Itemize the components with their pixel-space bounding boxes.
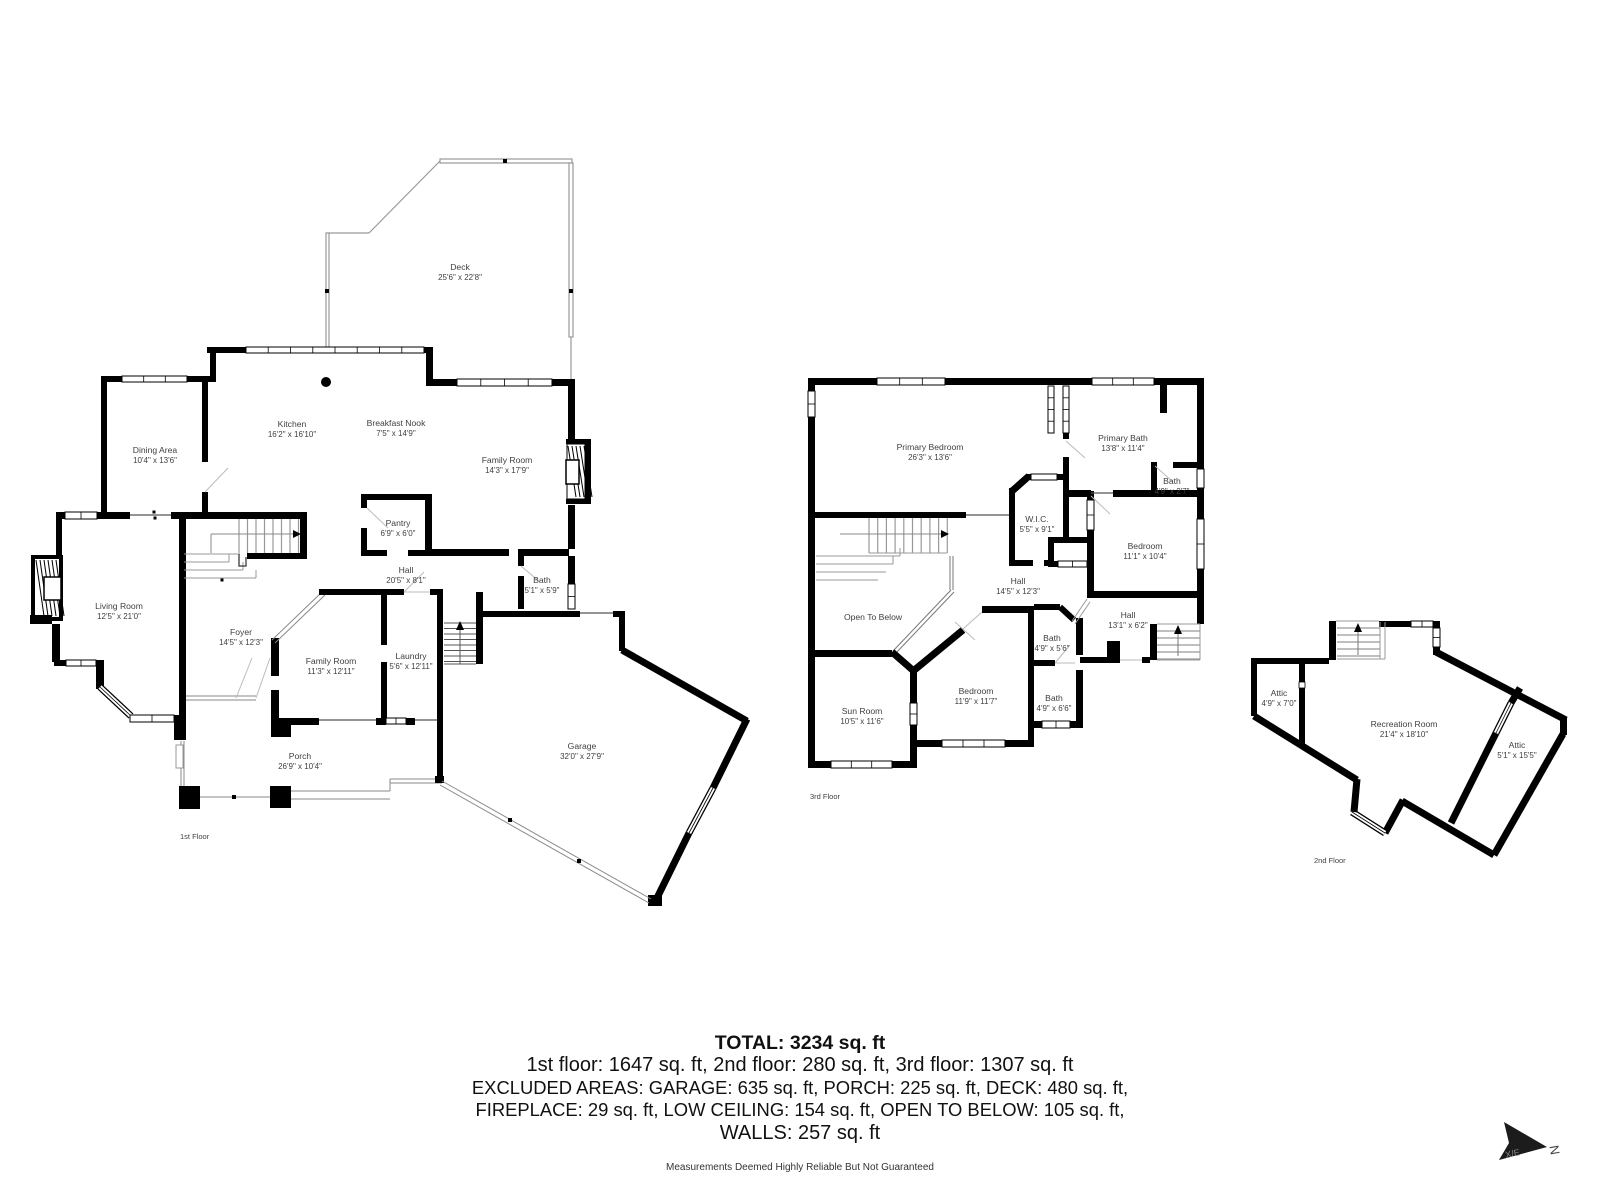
svg-text:26'9" x 10'4": 26'9" x 10'4" xyxy=(278,762,322,771)
svg-text:Bath: Bath xyxy=(1043,633,1061,643)
svg-text:Hall: Hall xyxy=(1011,576,1026,586)
svg-text:20'5" x 8'1": 20'5" x 8'1" xyxy=(386,576,426,585)
svg-text:Pantry: Pantry xyxy=(386,518,412,528)
svg-text:13'1" x 6'2": 13'1" x 6'2" xyxy=(1108,621,1148,630)
svg-text:12'5" x 21'0": 12'5" x 21'0" xyxy=(97,612,141,621)
svg-text:14'5" x 12'3": 14'5" x 12'3" xyxy=(219,638,263,647)
svg-text:14'3" x 17'9": 14'3" x 17'9" xyxy=(485,466,529,475)
svg-text:FIREPLACE: 29 sq. ft, LOW CEIL: FIREPLACE: 29 sq. ft, LOW CEILING: 154 s… xyxy=(475,1099,1124,1120)
svg-text:5'5" x 9'1": 5'5" x 9'1" xyxy=(1020,525,1055,534)
svg-text:11'1" x 10'4": 11'1" x 10'4" xyxy=(1123,552,1166,561)
svg-text:1st Floor: 1st Floor xyxy=(180,832,210,841)
svg-text:Kitchen: Kitchen xyxy=(278,419,307,429)
svg-text:Attic: Attic xyxy=(1271,688,1288,698)
svg-text:7'5" x 14'9": 7'5" x 14'9" xyxy=(376,429,416,438)
svg-text:2nd Floor: 2nd Floor xyxy=(1314,856,1346,865)
svg-text:Recreation Room: Recreation Room xyxy=(1371,719,1438,729)
svg-text:13'8" x 11'4": 13'8" x 11'4" xyxy=(1101,444,1144,453)
svg-text:Bedroom: Bedroom xyxy=(959,686,994,696)
svg-text:Laundry: Laundry xyxy=(395,651,427,661)
svg-text:11'3" x 12'11": 11'3" x 12'11" xyxy=(307,667,354,676)
svg-text:1st floor: 1647 sq. ft, 2nd fl: 1st floor: 1647 sq. ft, 2nd floor: 280 s… xyxy=(527,1054,1074,1076)
svg-text:6'9" x 6'0": 6'9" x 6'0" xyxy=(381,529,416,538)
svg-text:21'4" x 18'10": 21'4" x 18'10" xyxy=(1380,730,1428,739)
svg-text:4'9" x 5'6": 4'9" x 5'6" xyxy=(1035,644,1070,653)
svg-text:5'6" x 12'11": 5'6" x 12'11" xyxy=(389,662,432,671)
svg-text:Bath: Bath xyxy=(533,575,551,585)
svg-text:26'3" x 13'6": 26'3" x 13'6" xyxy=(908,453,952,462)
svg-text:Family Room: Family Room xyxy=(482,455,533,465)
svg-text:Measurements Deemed Highly Rel: Measurements Deemed Highly Reliable But … xyxy=(666,1162,934,1173)
svg-text:Deck: Deck xyxy=(450,262,470,272)
svg-text:WALLS: 257 sq. ft: WALLS: 257 sq. ft xyxy=(720,1122,881,1144)
svg-text:Breakfast Nook: Breakfast Nook xyxy=(367,418,426,428)
svg-text:16'2" x 16'10": 16'2" x 16'10" xyxy=(268,430,316,439)
svg-text:EXCLUDED AREAS: GARAGE: 635 sq: EXCLUDED AREAS: GARAGE: 635 sq. ft, PORC… xyxy=(472,1077,1128,1098)
svg-text:4'9" x 7'0": 4'9" x 7'0" xyxy=(1262,699,1297,708)
svg-text:25'6" x 22'8": 25'6" x 22'8" xyxy=(438,273,482,282)
svg-text:14'5" x 12'3": 14'5" x 12'3" xyxy=(996,587,1040,596)
svg-text:TOTAL: 3234 sq. ft: TOTAL: 3234 sq. ft xyxy=(715,1032,886,1054)
svg-text:10'4" x 13'6": 10'4" x 13'6" xyxy=(133,456,177,465)
svg-text:Open To Below: Open To Below xyxy=(844,612,903,622)
svg-text:Attic: Attic xyxy=(1509,740,1526,750)
svg-text:Bath: Bath xyxy=(1163,476,1181,486)
svg-text:Garage: Garage xyxy=(568,741,597,751)
svg-text:Bedroom: Bedroom xyxy=(1128,541,1163,551)
svg-text:4'9" x 6'6": 4'9" x 6'6" xyxy=(1037,704,1072,713)
svg-text:3rd Floor: 3rd Floor xyxy=(810,792,841,801)
svg-text:Living Room: Living Room xyxy=(95,601,143,611)
svg-text:5'1" x 15'5": 5'1" x 15'5" xyxy=(1497,751,1537,760)
svg-text:5'1" x 5'9": 5'1" x 5'9" xyxy=(525,586,560,595)
svg-text:4'9" x 2'7": 4'9" x 2'7" xyxy=(1155,487,1190,496)
svg-text:Bath: Bath xyxy=(1045,693,1063,703)
svg-text:Primary Bedroom: Primary Bedroom xyxy=(897,442,964,452)
svg-text:Family Room: Family Room xyxy=(306,656,357,666)
svg-text:Porch: Porch xyxy=(289,751,312,761)
svg-text:W.I.C.: W.I.C. xyxy=(1025,514,1048,524)
svg-text:Hall: Hall xyxy=(399,565,414,575)
svg-text:11'9" x 11'7": 11'9" x 11'7" xyxy=(955,697,998,706)
svg-text:10'5" x 11'6": 10'5" x 11'6" xyxy=(840,717,883,726)
svg-text:32'0" x 27'9": 32'0" x 27'9" xyxy=(560,752,604,761)
svg-text:Sun Room: Sun Room xyxy=(842,706,883,716)
svg-text:Foyer: Foyer xyxy=(230,627,252,637)
svg-text:Primary Bath: Primary Bath xyxy=(1098,433,1148,443)
svg-text:Dining Area: Dining Area xyxy=(133,445,178,455)
svg-text:Hall: Hall xyxy=(1121,610,1136,620)
